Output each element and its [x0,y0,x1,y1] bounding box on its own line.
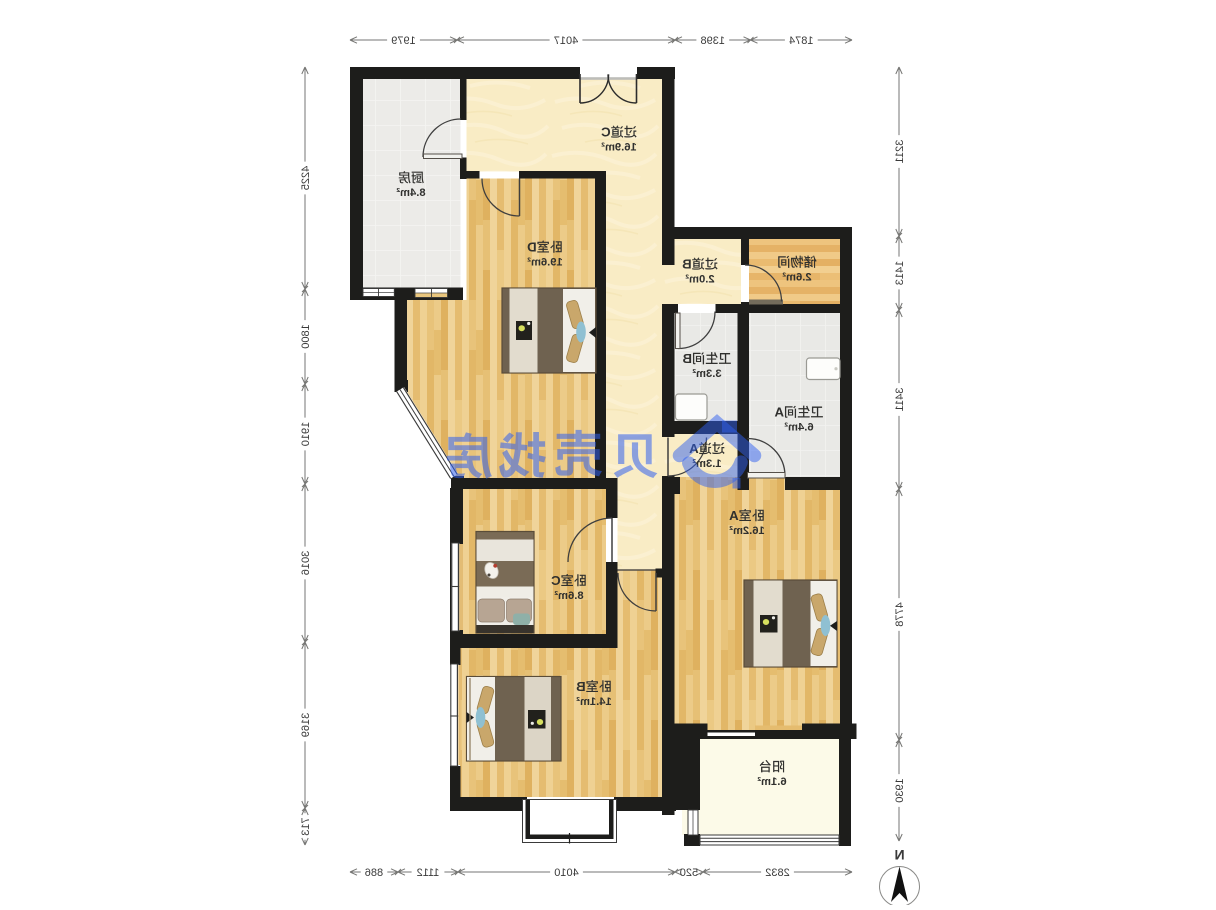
svg-text:1112: 1112 [417,867,440,879]
svg-text:3211: 3211 [894,140,906,164]
svg-text:4017: 4017 [554,35,578,47]
svg-text:8.6m²: 8.6m² [554,590,583,602]
svg-text:1413: 1413 [894,261,906,285]
svg-text:B: B [576,679,586,694]
svg-text:2832: 2832 [765,867,789,879]
svg-text:D: D [527,239,537,254]
svg-text:A: A [774,404,784,419]
svg-text:19.6m²: 19.6m² [527,257,563,269]
svg-text:1930: 1930 [894,778,906,802]
svg-text:1910: 1910 [300,422,312,446]
svg-text:713: 713 [300,817,312,835]
svg-text:3411: 3411 [894,388,906,412]
svg-text:N: N [894,847,904,863]
svg-text:B: B [682,351,692,366]
svg-text:6.1m²: 6.1m² [757,776,786,788]
svg-text:16.2m²: 16.2m² [729,525,765,537]
svg-text:C: C [551,573,561,588]
svg-text:8.4m²: 8.4m² [396,187,425,199]
svg-text:4225: 4225 [300,166,312,190]
svg-text:520: 520 [680,867,698,879]
svg-text:1800: 1800 [300,324,312,348]
svg-text:3169: 3169 [300,713,312,737]
svg-text:4010: 4010 [554,867,578,879]
svg-text:3.3m²: 3.3m² [692,368,721,380]
svg-text:2.6m²: 2.6m² [782,272,811,284]
svg-text:B: B [682,256,692,271]
svg-text:16.9m²: 16.9m² [601,142,637,154]
svg-text:886: 886 [365,867,383,879]
svg-text:4778: 4778 [894,602,906,626]
svg-text:1398: 1398 [701,35,725,47]
svg-text:2.0m²: 2.0m² [685,274,714,286]
svg-text:1979: 1979 [391,35,415,47]
svg-text:1874: 1874 [789,35,813,47]
svg-text:A: A [729,508,739,523]
svg-text:3016: 3016 [300,551,312,575]
svg-text:6.4m²: 6.4m² [784,422,813,434]
svg-text:C: C [601,124,611,139]
svg-text:14.1m²: 14.1m² [576,696,612,708]
